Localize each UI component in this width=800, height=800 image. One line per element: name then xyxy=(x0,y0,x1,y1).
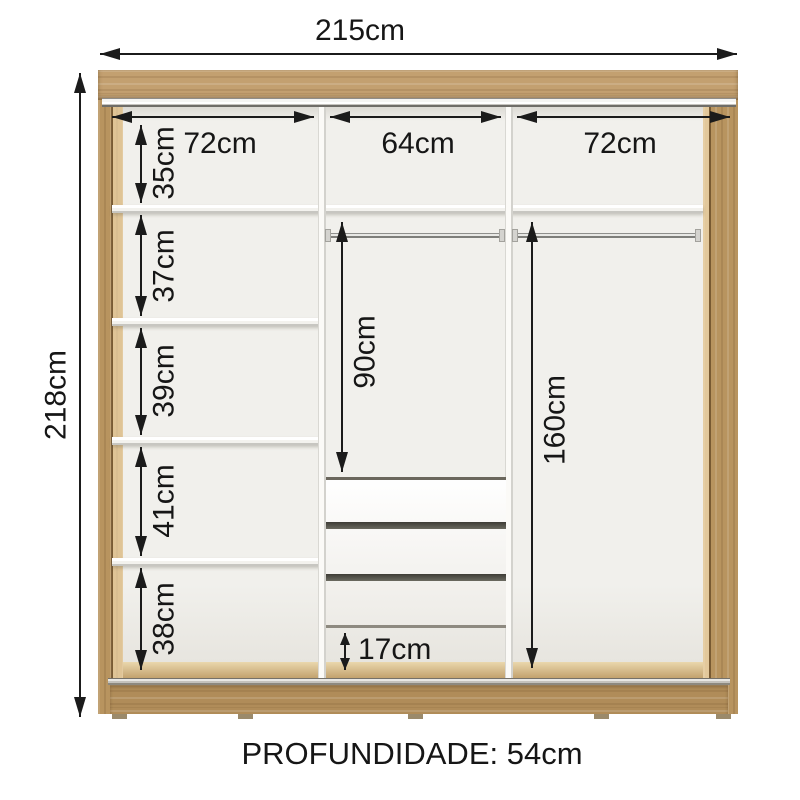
top-panel xyxy=(98,70,738,100)
hanging-rod-middle xyxy=(328,233,504,238)
left-shelf-4 xyxy=(112,558,322,566)
overall-height-label: 218cm xyxy=(40,350,73,440)
overall-width-label: 215cm xyxy=(315,14,405,47)
foot xyxy=(716,714,731,719)
bottom-door-track xyxy=(108,678,730,685)
drawer-bottom-edge xyxy=(326,625,506,628)
shelf-gap-label-2: 37cm xyxy=(148,229,181,302)
foot xyxy=(238,714,253,719)
bottom-gap-label: 17cm xyxy=(358,633,431,666)
depth-caption: PROFUNDIDADE: 54cm xyxy=(241,737,582,771)
rod-bracket xyxy=(695,229,701,242)
shelf-gap-arrow-1 xyxy=(140,125,142,203)
shelf-gap-arrow-4 xyxy=(140,447,142,556)
shelf-gap-label-1: 35cm xyxy=(148,126,181,199)
hang-height-label-middle: 90cm xyxy=(349,315,382,388)
drawer-top-edge xyxy=(326,477,506,480)
hang-height-arrow-right xyxy=(531,222,533,668)
rod-bracket xyxy=(325,229,331,242)
shelf-gap-label-4: 41cm xyxy=(148,464,181,537)
foot xyxy=(408,714,423,719)
foot xyxy=(594,714,609,719)
shelf-gap-label-3: 39cm xyxy=(148,344,181,417)
section-width-arrow-left xyxy=(112,116,314,118)
foot xyxy=(112,714,127,719)
shelf-gap-arrow-3 xyxy=(140,328,142,435)
overall-width-arrow xyxy=(100,53,737,55)
bottom-gap-arrow xyxy=(344,633,346,670)
section-width-label-middle: 64cm xyxy=(381,127,454,160)
overall-height-arrow xyxy=(79,73,81,717)
divider-left xyxy=(318,107,326,678)
rod-bracket xyxy=(512,229,518,242)
drawer-gap xyxy=(326,574,506,581)
top-shelf xyxy=(112,205,703,213)
drawer-unit xyxy=(326,477,506,628)
wardrobe-dimension-diagram: 215cm 218cm 72cm 64cm 72cm 35cm 37 xyxy=(0,0,800,800)
hanging-rod-right xyxy=(514,233,700,238)
shelf-gap-label-5: 38cm xyxy=(148,582,181,655)
right-side-panel xyxy=(703,96,738,714)
left-shelf-3 xyxy=(112,437,322,445)
hang-height-label-right: 160cm xyxy=(539,375,572,465)
base-plinth xyxy=(110,684,728,714)
section-width-arrow-middle xyxy=(330,116,501,118)
section-width-arrow-right xyxy=(517,116,730,118)
rod-bracket xyxy=(499,229,505,242)
divider-right xyxy=(505,107,513,678)
drawer-gap xyxy=(326,522,506,529)
top-door-track xyxy=(102,98,736,107)
left-shelf-2 xyxy=(112,318,322,326)
section-width-label-left: 72cm xyxy=(183,127,256,160)
shelf-gap-arrow-5 xyxy=(140,568,142,670)
section-width-label-right: 72cm xyxy=(583,127,656,160)
left-side-panel xyxy=(98,96,123,714)
shelf-gap-arrow-2 xyxy=(140,215,142,316)
hang-height-arrow-middle xyxy=(341,222,343,472)
